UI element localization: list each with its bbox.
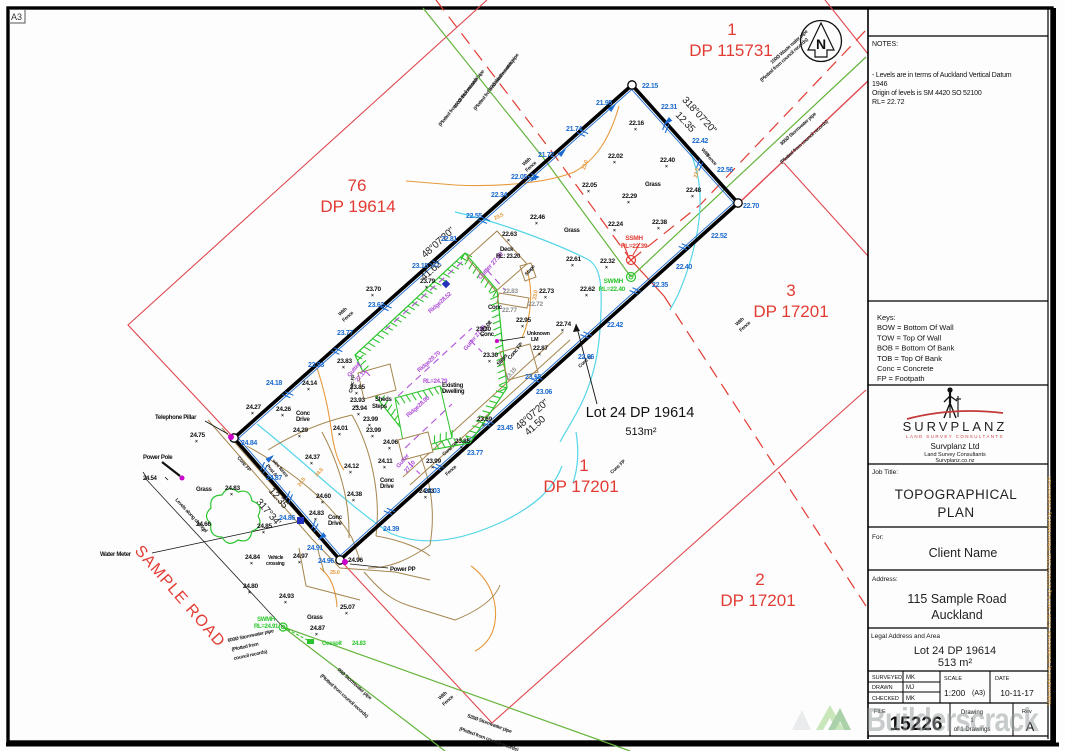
- svg-text:22.72: 22.72: [528, 301, 543, 308]
- svg-text:24.84: 24.84: [241, 440, 257, 447]
- svg-text:×: ×: [634, 127, 637, 133]
- svg-text:76: 76: [348, 176, 367, 195]
- svg-text:22.81: 22.81: [441, 236, 457, 243]
- svg-text:DATE: DATE: [995, 676, 1010, 682]
- svg-text:24.96: 24.96: [348, 557, 363, 564]
- svg-text:22.56: 22.56: [717, 167, 733, 174]
- svg-text:Grass: Grass: [307, 615, 323, 621]
- svg-text:513m²: 513m²: [625, 426, 657, 438]
- svg-text:×: ×: [488, 359, 491, 365]
- svg-text:24.93: 24.93: [279, 593, 294, 600]
- svg-text:MJ: MJ: [906, 685, 914, 691]
- svg-text:Drive: Drive: [296, 417, 310, 423]
- svg-text:×: ×: [535, 221, 538, 227]
- svg-text:22.83: 22.83: [503, 288, 518, 295]
- svg-text:RL=22.39: RL=22.39: [621, 243, 648, 250]
- svg-text:×: ×: [195, 439, 198, 445]
- svg-text:Conc: Conc: [480, 332, 495, 338]
- svg-text:×: ×: [371, 293, 374, 299]
- svg-text:SSMH: SSMH: [625, 235, 643, 242]
- svg-text:×: ×: [250, 561, 253, 567]
- svg-text:×: ×: [281, 413, 284, 419]
- svg-text:Drive: Drive: [328, 521, 342, 527]
- svg-text:23.30: 23.30: [483, 352, 498, 359]
- svg-text:DP 115731: DP 115731: [689, 41, 773, 60]
- svg-text:×: ×: [482, 423, 485, 429]
- svg-text:24.87: 24.87: [310, 625, 325, 632]
- svg-text:Dwelling: Dwelling: [442, 389, 465, 395]
- svg-text:×: ×: [538, 352, 541, 358]
- svg-text:×: ×: [342, 365, 345, 371]
- svg-text:24.75: 24.75: [190, 432, 205, 439]
- svg-text:23.99: 23.99: [363, 416, 378, 423]
- svg-text:Lot 24 DP 19614: Lot 24 DP 19614: [586, 405, 695, 421]
- svg-text:Job Title:: Job Title:: [872, 469, 898, 476]
- svg-text:Steps: Steps: [372, 404, 388, 410]
- svg-text:22.55: 22.55: [466, 213, 482, 220]
- svg-text:22.40: 22.40: [676, 264, 692, 271]
- svg-text:23.77: 23.77: [337, 330, 353, 337]
- svg-text:Water Meter: Water Meter: [100, 552, 132, 558]
- svg-text:×: ×: [460, 445, 463, 451]
- svg-text:×: ×: [321, 500, 324, 506]
- svg-text:Watermarked by Builderscrack 1: Watermarked by Builderscrack 15226 Sent …: [1047, 476, 1053, 705]
- svg-text:crossing: crossing: [266, 561, 285, 567]
- svg-text:×: ×: [315, 632, 318, 638]
- svg-text:SURVEYED: SURVEYED: [872, 675, 902, 681]
- svg-text:24.83: 24.83: [352, 641, 366, 647]
- svg-text:Conc = Concrete: Conc = Concrete: [877, 364, 934, 373]
- svg-text:×: ×: [298, 560, 301, 566]
- svg-text:24.87: 24.87: [266, 475, 282, 482]
- svg-text:×: ×: [368, 423, 371, 429]
- svg-text:1: 1: [579, 456, 588, 475]
- svg-text:RL=24.91: RL=24.91: [254, 624, 279, 630]
- svg-text:22.40: 22.40: [660, 157, 675, 164]
- svg-text:25.0: 25.0: [330, 570, 340, 576]
- svg-text:×: ×: [310, 461, 313, 467]
- svg-text:24.12: 24.12: [344, 463, 359, 470]
- svg-text:22.16: 22.16: [629, 120, 644, 127]
- svg-text:×: ×: [665, 164, 668, 170]
- svg-text:×: ×: [544, 295, 547, 301]
- svg-text:22.34: 22.34: [491, 192, 507, 199]
- svg-text:×: ×: [613, 160, 616, 166]
- svg-text:22.42: 22.42: [692, 138, 708, 145]
- svg-text:Survplanz Ltd: Survplanz Ltd: [931, 442, 980, 451]
- svg-text:BOW = Bottom Of Wall: BOW = Bottom Of Wall: [877, 323, 954, 332]
- svg-text:21.95: 21.95: [596, 100, 612, 107]
- svg-text:22.35: 22.35: [652, 282, 668, 289]
- svg-text:24.97: 24.97: [293, 553, 308, 560]
- svg-text:24.91: 24.91: [307, 545, 323, 552]
- svg-text:24.01: 24.01: [333, 425, 348, 432]
- svg-text:23.94: 23.94: [352, 405, 367, 412]
- svg-text:×: ×: [298, 434, 301, 440]
- svg-text:2: 2: [755, 570, 764, 589]
- svg-text:3: 3: [786, 281, 795, 300]
- svg-text:22.62: 22.62: [580, 286, 595, 293]
- svg-text:×: ×: [424, 495, 427, 501]
- svg-text:TOW = Top Of Wall: TOW = Top Of Wall: [877, 333, 942, 342]
- svg-text:22.05: 22.05: [582, 182, 597, 189]
- svg-text:×: ×: [284, 600, 287, 606]
- svg-text:22.87: 22.87: [533, 345, 548, 352]
- svg-text:Deck: Deck: [500, 247, 514, 253]
- svg-text:Cesspit: Cesspit: [322, 641, 342, 647]
- svg-text:24.39: 24.39: [383, 526, 399, 533]
- svg-text:Telephone Pillar: Telephone Pillar: [155, 415, 197, 421]
- svg-text:×: ×: [571, 263, 574, 269]
- svg-text:×: ×: [425, 285, 428, 291]
- svg-text:22.74: 22.74: [556, 321, 571, 328]
- svg-text:1:200: 1:200: [944, 688, 966, 698]
- svg-text:24.29: 24.29: [293, 427, 308, 434]
- svg-text:×: ×: [307, 387, 310, 393]
- svg-text:22.48: 22.48: [686, 187, 701, 194]
- svg-text:24.03: 24.03: [419, 488, 434, 495]
- svg-text:24.54: 24.54: [143, 476, 157, 482]
- svg-text:×: ×: [691, 194, 694, 200]
- svg-text:N: N: [816, 36, 826, 52]
- svg-text:22.66: 22.66: [578, 354, 594, 361]
- svg-text:Lot 24 DP 19614: Lot 24 DP 19614: [914, 645, 996, 657]
- svg-text:Drive: Drive: [380, 484, 394, 490]
- svg-text:TOPOGRAPHICAL: TOPOGRAPHICAL: [895, 487, 1018, 502]
- svg-text:23.06: 23.06: [536, 389, 552, 396]
- svg-text:×: ×: [388, 446, 391, 452]
- svg-text:115 Sample Road: 115 Sample Road: [907, 592, 1006, 606]
- svg-text:24.37: 24.37: [305, 454, 320, 461]
- svg-text:×: ×: [521, 324, 524, 330]
- svg-text:PLAN: PLAN: [937, 505, 974, 520]
- svg-text:23.83: 23.83: [337, 358, 352, 365]
- svg-text:Legal Address and Area: Legal Address and Area: [871, 633, 940, 640]
- svg-text:Survplanz.co.nz: Survplanz.co.nz: [935, 458, 974, 464]
- svg-text:×: ×: [561, 328, 564, 334]
- svg-text:DP 17201: DP 17201: [543, 477, 618, 496]
- svg-text:22.61: 22.61: [566, 256, 581, 263]
- svg-text:22.77: 22.77: [502, 307, 517, 314]
- svg-text:513 m²: 513 m²: [938, 657, 973, 669]
- svg-text:24.66: 24.66: [196, 521, 211, 528]
- svg-text:1: 1: [727, 20, 736, 39]
- svg-text:22.95: 22.95: [516, 317, 531, 324]
- svg-text:For:: For:: [872, 534, 884, 541]
- svg-text:A3: A3: [11, 12, 22, 22]
- svg-text:23.15: 23.15: [525, 374, 541, 381]
- svg-text:×: ×: [587, 189, 590, 195]
- svg-text:×: ×: [371, 434, 374, 440]
- svg-text:Address:: Address:: [872, 576, 898, 583]
- svg-text:DP 17201: DP 17201: [753, 302, 828, 321]
- svg-text:22.05: 22.05: [511, 174, 527, 181]
- svg-text:24.86: 24.86: [279, 515, 295, 522]
- svg-text:21.72: 21.72: [538, 152, 554, 159]
- svg-text:Grass: Grass: [196, 487, 212, 493]
- svg-text:×: ×: [262, 530, 265, 536]
- svg-text:10-11-17: 10-11-17: [1000, 688, 1034, 698]
- svg-text:22.46: 22.46: [530, 214, 545, 221]
- svg-text:×: ×: [338, 432, 341, 438]
- svg-text:23.69: 23.69: [477, 416, 492, 423]
- svg-text:22.32: 22.32: [600, 258, 615, 265]
- svg-text:24.18: 24.18: [266, 380, 282, 387]
- svg-text:22.31: 22.31: [661, 104, 677, 111]
- svg-text:Conc: Conc: [488, 305, 503, 311]
- svg-text:23.45: 23.45: [497, 425, 513, 432]
- svg-text:×: ×: [431, 465, 434, 471]
- svg-text:22.52: 22.52: [711, 233, 727, 240]
- svg-text:×: ×: [585, 293, 588, 299]
- svg-text:24.06: 24.06: [383, 439, 398, 446]
- svg-text:×: ×: [201, 528, 204, 534]
- svg-text:×: ×: [605, 265, 608, 271]
- svg-text:SURVPLANZ: SURVPLANZ: [903, 419, 1008, 434]
- svg-text:22.24: 22.24: [608, 221, 623, 228]
- svg-text:22.29: 22.29: [622, 193, 637, 200]
- svg-text:×: ×: [507, 238, 510, 244]
- svg-text:RL= 22.72: RL= 22.72: [872, 99, 905, 106]
- svg-text:TOB = Top Of Bank: TOB = Top Of Bank: [877, 354, 942, 363]
- svg-text:×: ×: [248, 590, 251, 596]
- svg-text:×: ×: [657, 226, 660, 232]
- svg-text:24.11: 24.11: [378, 458, 393, 465]
- svg-text:FP = Footpath: FP = Footpath: [877, 374, 925, 383]
- svg-text:DP 17201: DP 17201: [720, 591, 795, 610]
- svg-text:Keys:: Keys:: [877, 313, 896, 322]
- svg-text:23.93: 23.93: [308, 362, 324, 369]
- svg-text:×: ×: [230, 492, 233, 498]
- svg-text:23.79: 23.79: [420, 278, 435, 285]
- svg-text:×: ×: [613, 228, 616, 234]
- svg-text:Origin of levels is SM 4420 SO: Origin of levels is SM 4420 SO 52100: [872, 90, 982, 97]
- svg-text:23.15: 23.15: [412, 263, 428, 270]
- svg-text:DRAWN: DRAWN: [872, 685, 893, 691]
- svg-text:23.93: 23.93: [350, 397, 365, 404]
- svg-text:23.99: 23.99: [426, 458, 441, 465]
- svg-text:×: ×: [357, 412, 360, 418]
- svg-text:24.96: 24.96: [318, 558, 334, 565]
- svg-text:Auckland: Auckland: [931, 608, 982, 622]
- svg-text:LAND SURVEY CONSULTANTS: LAND SURVEY CONSULTANTS: [906, 434, 1004, 439]
- svg-text:22.42: 22.42: [607, 322, 623, 329]
- svg-text:Builderscrack: Builderscrack: [866, 701, 1039, 738]
- svg-text:24.83: 24.83: [225, 485, 240, 492]
- svg-text:23.70: 23.70: [366, 286, 381, 293]
- svg-text:24.26: 24.26: [276, 406, 291, 413]
- svg-text:(A3): (A3): [972, 690, 985, 697]
- svg-text:×: ×: [383, 465, 386, 471]
- svg-text:24.27: 24.27: [246, 404, 261, 411]
- svg-text:MK: MK: [906, 675, 915, 681]
- svg-text:RL: 23.20: RL: 23.20: [496, 254, 521, 260]
- svg-text:Grass: Grass: [564, 228, 580, 234]
- svg-text:22.02: 22.02: [608, 153, 623, 160]
- svg-text:22.15: 22.15: [642, 83, 658, 90]
- svg-text:22.38: 22.38: [652, 219, 667, 226]
- svg-text:23.85: 23.85: [455, 438, 470, 445]
- svg-text:×: ×: [251, 411, 254, 417]
- svg-text:22.73: 22.73: [539, 288, 554, 295]
- svg-text:- Levels are in terms of Auckl: - Levels are in terms of Auckland Vertic…: [872, 72, 1012, 79]
- svg-text:×: ×: [345, 611, 348, 617]
- svg-text:22.63: 22.63: [502, 231, 517, 238]
- svg-text:23.77: 23.77: [467, 450, 483, 457]
- svg-text:Client Name: Client Name: [929, 546, 998, 560]
- svg-text:Sheds: Sheds: [375, 397, 392, 403]
- svg-text:24.84: 24.84: [245, 554, 260, 561]
- svg-text:25.07: 25.07: [340, 604, 355, 611]
- svg-text:Power PP: Power PP: [390, 567, 416, 573]
- svg-text:SWMH: SWMH: [604, 278, 624, 285]
- svg-text:Power Pole: Power Pole: [143, 455, 173, 461]
- svg-text:22.70: 22.70: [743, 203, 759, 210]
- svg-text:SWMH: SWMH: [257, 617, 275, 623]
- svg-text:Grass: Grass: [645, 182, 661, 188]
- svg-text:21.74: 21.74: [566, 126, 582, 133]
- svg-text:DP 19614: DP 19614: [320, 197, 395, 216]
- svg-text:24.14: 24.14: [302, 380, 317, 387]
- svg-text:24.85: 24.85: [257, 523, 272, 530]
- svg-text:24.60: 24.60: [316, 493, 331, 500]
- svg-text:24.38: 24.38: [347, 491, 362, 498]
- svg-text:1946: 1946: [872, 81, 888, 88]
- svg-text:23.85: 23.85: [350, 384, 365, 391]
- svg-text:×: ×: [314, 517, 317, 523]
- svg-text:BOB = Bottom Of Bank: BOB = Bottom Of Bank: [877, 344, 955, 353]
- svg-text:×: ×: [627, 200, 630, 206]
- svg-text:23.62: 23.62: [368, 302, 384, 309]
- svg-text:LM: LM: [531, 337, 539, 343]
- svg-text:SCALE: SCALE: [944, 676, 962, 682]
- svg-text:NOTES:: NOTES:: [872, 41, 898, 48]
- svg-text:24.80: 24.80: [243, 583, 258, 590]
- svg-text:×: ×: [349, 470, 352, 476]
- svg-text:24.83: 24.83: [309, 510, 324, 517]
- svg-text:×: ×: [352, 498, 355, 504]
- svg-text:RL=22.40: RL=22.40: [599, 286, 626, 293]
